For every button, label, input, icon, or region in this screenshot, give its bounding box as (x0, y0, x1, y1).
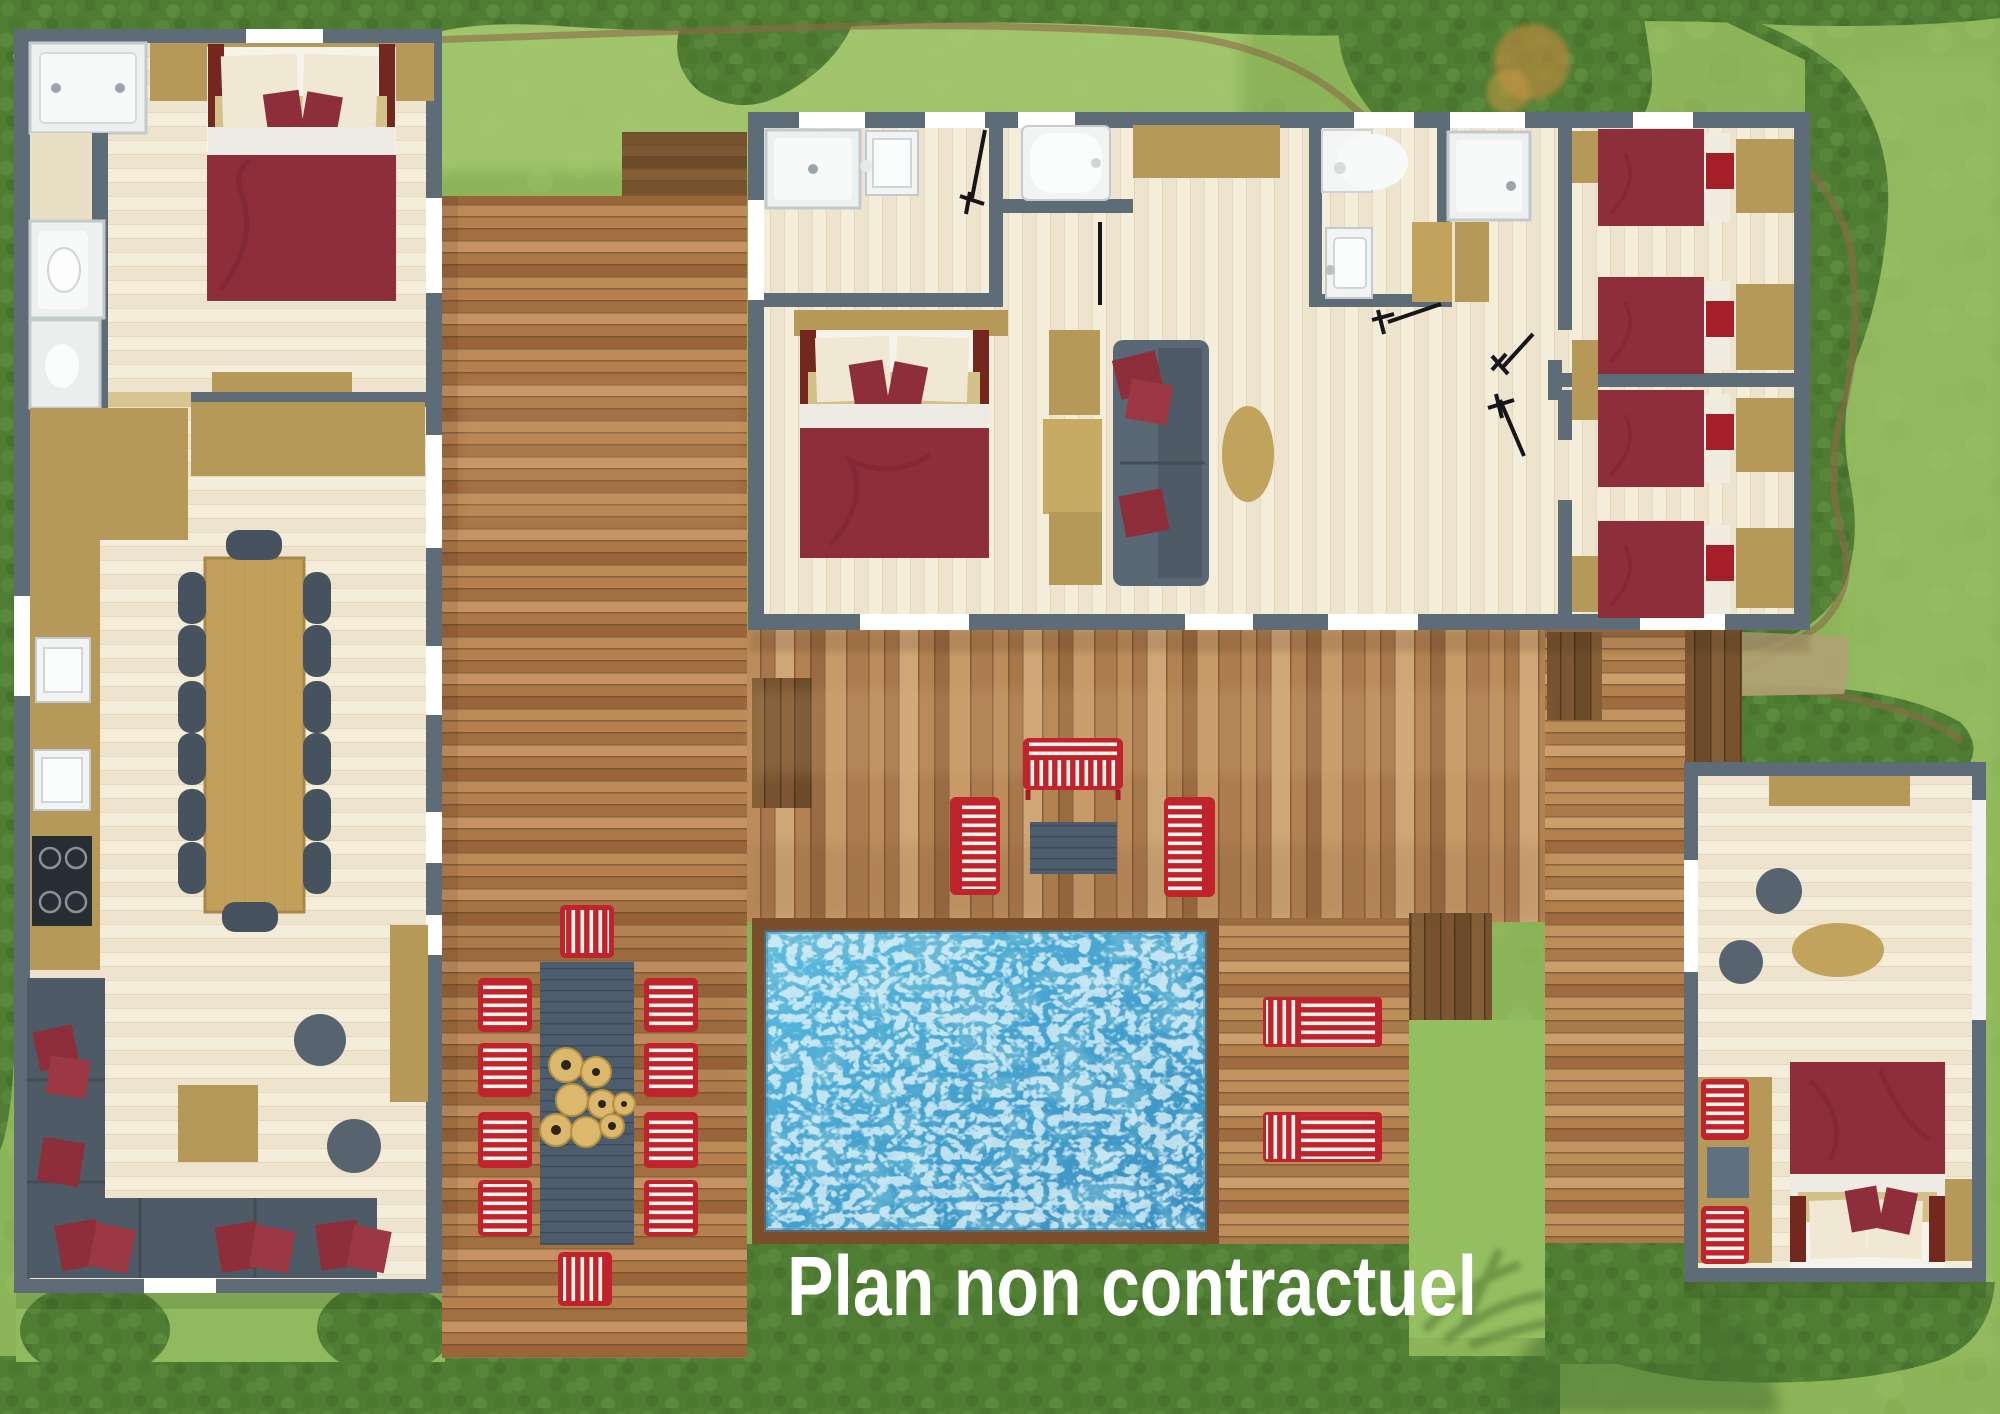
svg-text:Plan non contractuel: Plan non contractuel (787, 1239, 1477, 1333)
